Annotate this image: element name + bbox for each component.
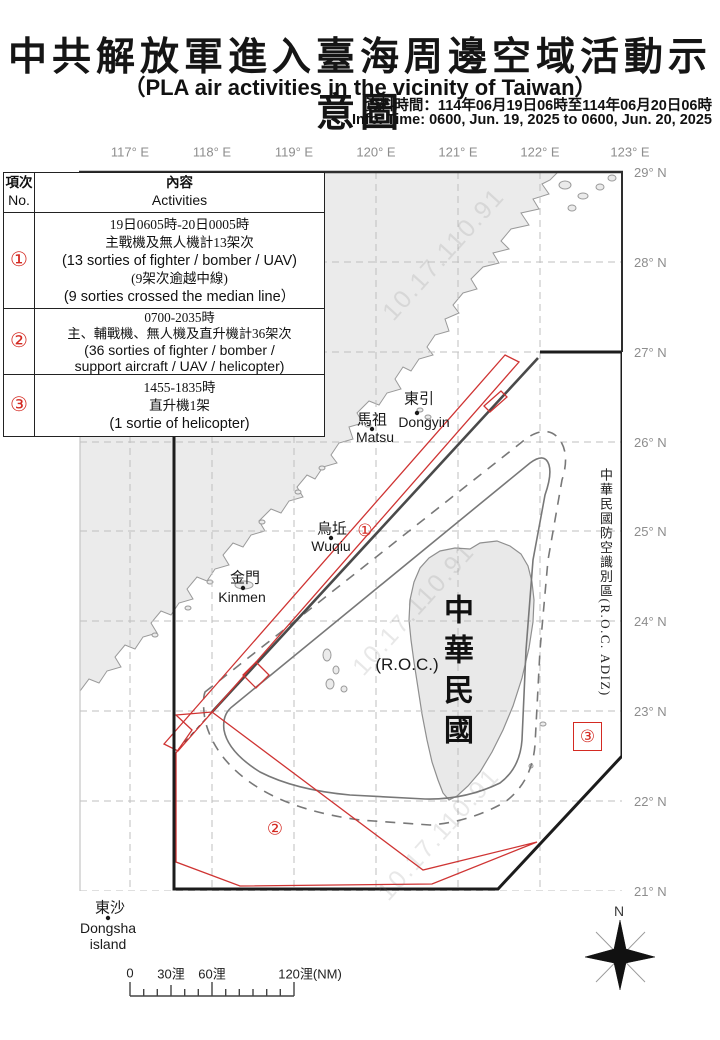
label-dongyin-en: Dongyin bbox=[398, 414, 449, 430]
table-header-no: 項次 No. bbox=[4, 173, 35, 213]
activity-area-1-notch bbox=[484, 391, 507, 412]
table-header-activities: 內容 Activities bbox=[35, 173, 324, 213]
header-activities-en: Activities bbox=[152, 192, 207, 210]
label-dongyin-zh: 東引 bbox=[404, 388, 434, 409]
label-adiz-vertical: 中華民國防空識別區(R.O.C. ADIZ) bbox=[596, 468, 615, 697]
map-marker-2: ② bbox=[267, 819, 283, 840]
compass-north-label: N bbox=[614, 903, 624, 919]
map-marker-3: ③ bbox=[580, 727, 595, 747]
label-matsu-zh: 馬祖 bbox=[357, 409, 387, 430]
label-matsu-en: Matsu bbox=[356, 429, 394, 445]
pla-activity-chart-page: 中共解放軍進入臺海周邊空域活動示意圖 （PLA air activities i… bbox=[0, 0, 720, 1040]
table-row-2-activities: 0700-2035時 主、輔戰機、無人機及直升機計36架次 (36 sortie… bbox=[35, 309, 324, 375]
map-marker-3-box: ③ bbox=[573, 722, 602, 751]
activities-table: 項次 No. 內容 Activities ① 19日0605時-20日0005時… bbox=[3, 172, 325, 437]
header-activities-zh: 內容 bbox=[166, 175, 193, 192]
table-row-3-no: ③ bbox=[4, 375, 35, 436]
scale-label-120: 120浬(NM) bbox=[278, 964, 342, 983]
label-dongsha-island: island bbox=[90, 936, 127, 952]
compass-rose bbox=[585, 920, 655, 990]
label-wuqiu-en: Wuqiu bbox=[311, 538, 350, 554]
label-dongsha-zh: 東沙 bbox=[95, 897, 125, 918]
header-no-zh: 項次 bbox=[6, 175, 33, 192]
label-roc: (R.O.C.) bbox=[375, 655, 438, 675]
scale-label-60: 60浬 bbox=[198, 964, 225, 983]
header-no-en: No. bbox=[8, 192, 30, 210]
label-kinmen-zh: 金門 bbox=[230, 567, 260, 588]
label-kinmen-en: Kinmen bbox=[218, 589, 265, 605]
map-marker-1: ① bbox=[357, 521, 372, 541]
table-row-1-no: ① bbox=[4, 213, 35, 309]
scale-label-0: 0 bbox=[126, 966, 133, 981]
table-row-1-activities: 19日0605時-20日0005時 主戰機及無人機計13架次 (13 sorti… bbox=[35, 213, 324, 309]
label-taiwan-vertical: 中華民國 bbox=[433, 594, 477, 754]
table-row-3-activities: 1455-1835時 直升機1架 (1 sortie of helicopter… bbox=[35, 375, 324, 436]
scale-label-30: 30浬 bbox=[157, 964, 184, 983]
label-dongsha-en: Dongsha bbox=[80, 920, 136, 936]
scale-bar bbox=[130, 982, 294, 996]
label-wuqiu-zh: 烏坵 bbox=[317, 518, 347, 539]
table-row-2-no: ② bbox=[4, 309, 35, 375]
